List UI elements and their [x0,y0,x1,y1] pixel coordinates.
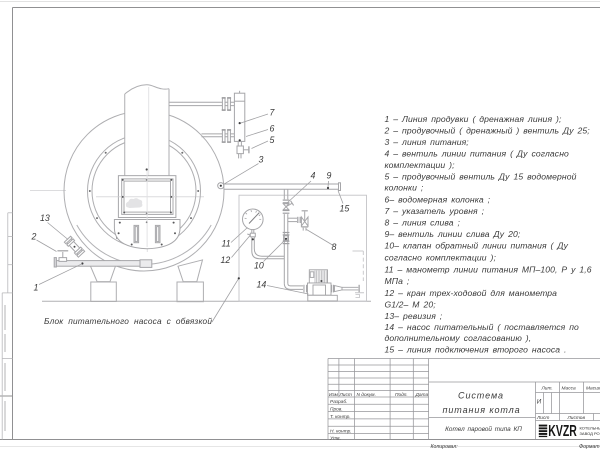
svg-text:10: 10 [254,261,264,271]
svg-text:Дата: Дата [415,392,429,398]
svg-text:Подп.: Подп. [395,392,408,398]
svg-text:11: 11 [222,238,231,248]
svg-text:3 – линия питания;: 3 – линия питания; [385,137,470,147]
svg-text:10– клапан обратный линии пит: 10– клапан обратный линии питания ( Ду [385,241,569,251]
svg-text:G1/2– М 20;: G1/2– М 20; [385,299,437,309]
svg-text:15: 15 [340,204,350,214]
svg-text:И: И [537,399,542,406]
svg-text:11 – манометр линии питания М: 11 – манометр линии питания МП–100, Р у … [385,265,592,275]
svg-text:9– вентиль линии слива Ду 20: 9– вентиль линии слива Ду 20; [385,229,521,239]
svg-text:7 – указатель уровня ;: 7 – указатель уровня ; [385,206,485,216]
svg-text:Утв.: Утв. [330,436,341,442]
svg-text:КОТЕЛЬНЫ: КОТЕЛЬНЫ [580,426,600,431]
svg-text:комплектации );: комплектации ); [385,160,456,170]
svg-text:14: 14 [257,279,267,289]
svg-text:Н. контр.: Н. контр. [330,428,352,434]
svg-text:Масшта: Масшта [586,386,600,392]
svg-text:13– ревизия ;: 13– ревизия ; [385,311,443,321]
svg-text:1 – Линия продувки ( дренажна: 1 – Линия продувки ( дренажная линия ); [385,114,562,124]
svg-text:5: 5 [270,135,275,145]
svg-text:KVZR: KVZR [548,423,577,440]
svg-text:Разраб.: Разраб. [330,399,347,405]
svg-text:Пров.: Пров. [330,407,343,413]
svg-text:N докум.: N докум. [357,392,376,398]
svg-text:13: 13 [40,213,50,223]
svg-text:12 – кран трех-ходовой для ма: 12 – кран трех-ходовой для манометра [385,288,558,298]
svg-text:Лист: Лист [536,415,549,421]
svg-text:2 – продувочный ( дренажный ): 2 – продувочный ( дренажный ) вентиль Ду… [384,126,591,136]
svg-text:Листов: Листов [567,415,586,421]
svg-text:9: 9 [327,171,332,181]
svg-text:15 – линия подключения второг: 15 – линия подключения второго насоса . [385,344,567,354]
svg-text:6– водомерная колонка ;: 6– водомерная колонка ; [385,194,491,204]
svg-text:4: 4 [311,171,316,181]
svg-text:Формат: Формат [579,444,600,450]
svg-text:Т. контр.: Т. контр. [330,414,351,420]
svg-text:4 – вентиль линии питания (: 4 – вентиль линии питания ( Ду согласно [385,149,570,159]
svg-text:8: 8 [332,242,337,252]
svg-text:дополнительному согласованию ): дополнительному согласованию ), [385,333,532,343]
svg-text:ЗАВОД РО: ЗАВОД РО [580,431,600,436]
svg-text:1: 1 [34,283,39,293]
svg-text:Котел паровой типа КП: Котел паровой типа КП [445,425,522,433]
svg-text:колонки ;: колонки ; [385,183,424,193]
svg-text:3: 3 [259,154,264,164]
svg-text:Лит.: Лит. [541,386,553,392]
svg-text:Система: Система [458,391,504,401]
svg-text:2: 2 [31,231,37,241]
svg-text:5 – продувочный вентиль Ду 1: 5 – продувочный вентиль Ду 15 водомерной [385,172,577,182]
svg-text:6: 6 [270,124,275,134]
svg-text:Лист: Лист [339,392,352,398]
svg-text:7: 7 [270,108,276,118]
svg-text:14 – насос питательный ( пост: 14 – насос питательный ( поставляется по [385,322,580,332]
svg-text:МПа ;: МПа ; [385,276,410,286]
svg-text:согласно комплектации );: согласно комплектации ); [385,253,497,263]
svg-text:12: 12 [221,255,231,265]
svg-text:Масса: Масса [562,386,577,392]
svg-text:Копировал:: Копировал: [431,444,459,450]
svg-text:Изм: Изм [329,392,339,398]
svg-text:питания котла: питания котла [443,405,521,415]
svg-text:8 – линия слива ;: 8 – линия слива ; [385,218,461,228]
svg-text:Блок питательного насоса с обв: Блок питательного насоса с обвязкой [44,316,212,326]
